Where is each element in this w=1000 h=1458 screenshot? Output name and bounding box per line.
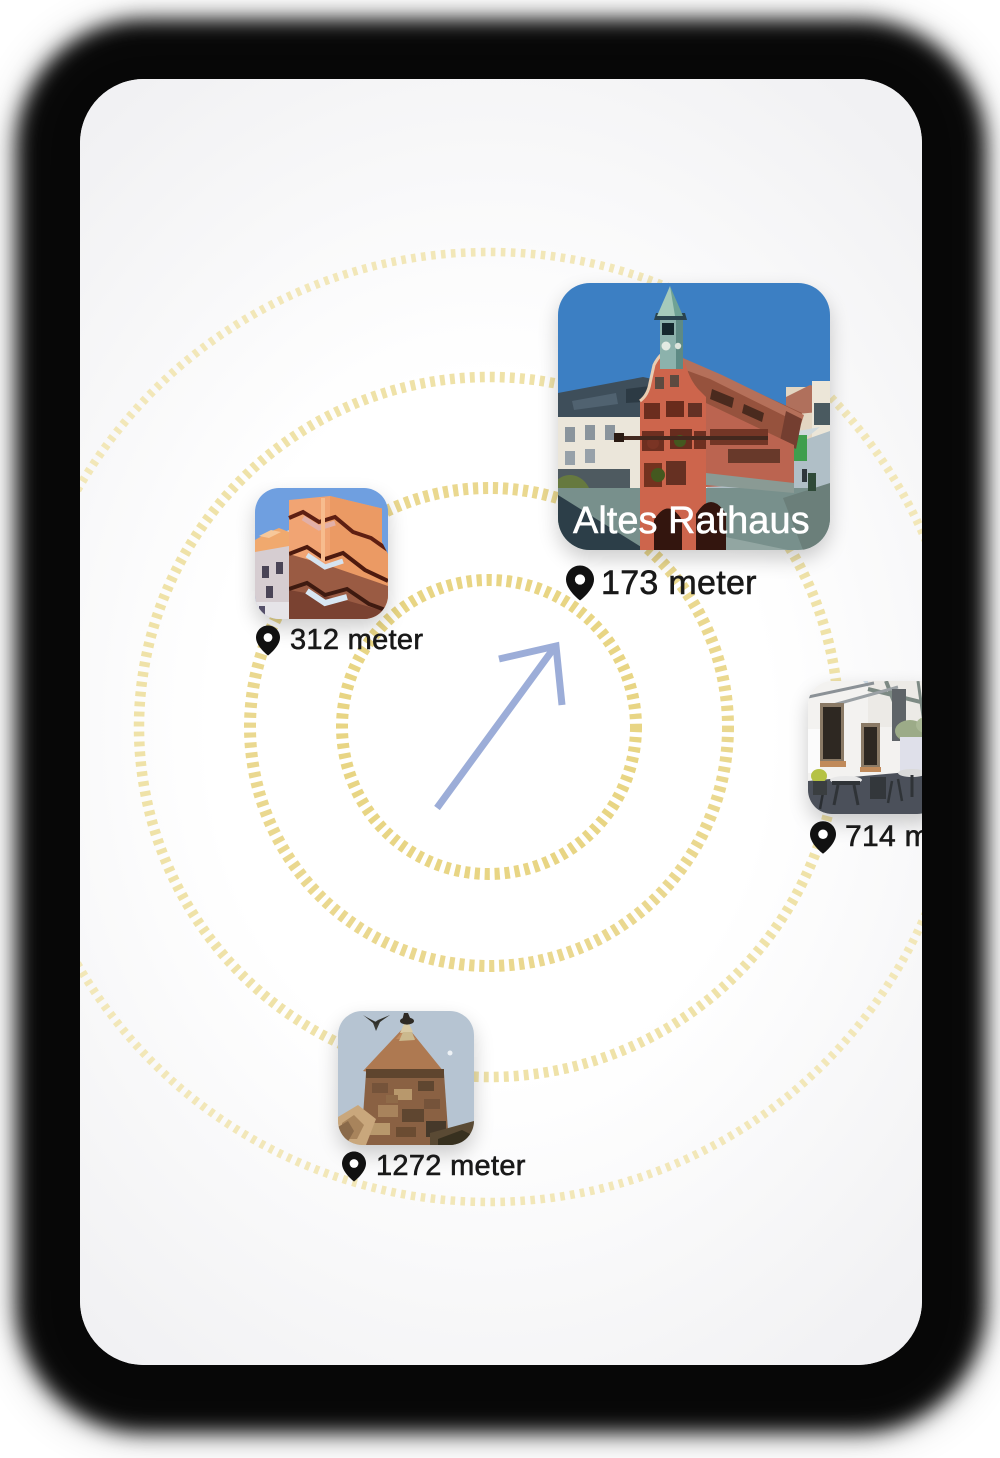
svg-text:Altes Rathaus: Altes Rathaus — [573, 500, 810, 542]
